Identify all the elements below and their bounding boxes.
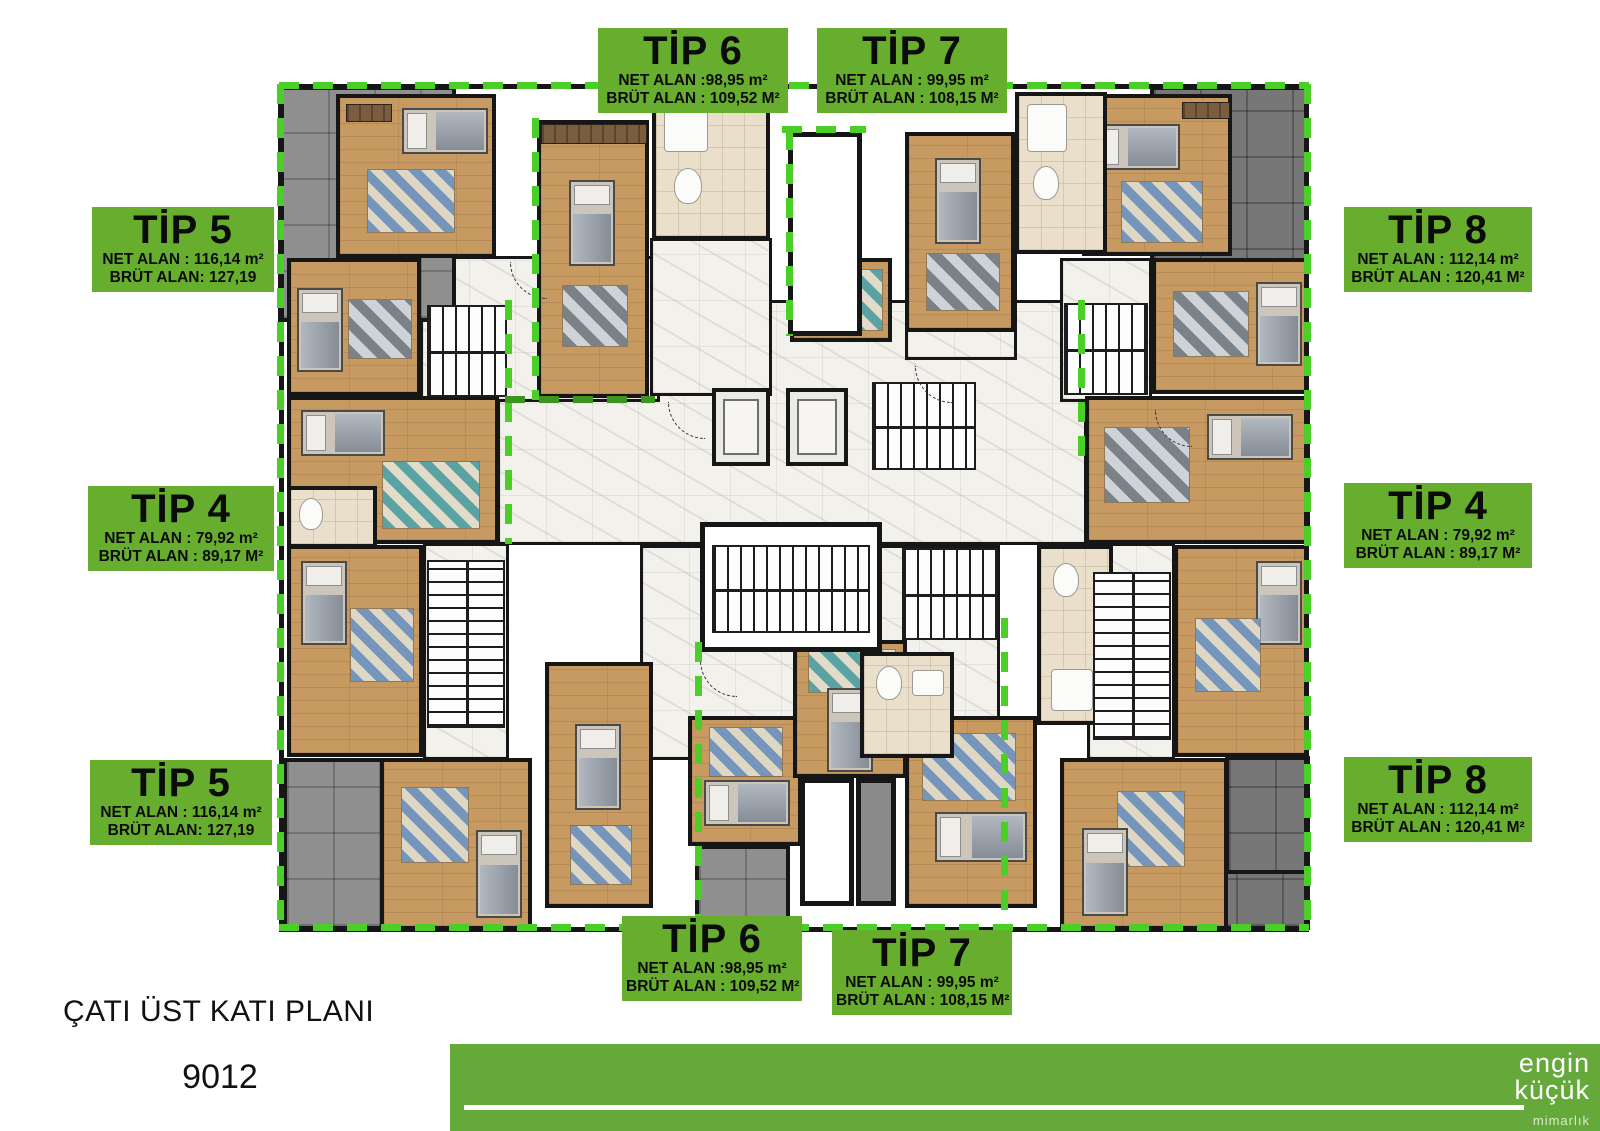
unit-label-net-area: NET ALAN : 116,14 m² — [94, 804, 268, 822]
building-outer-wall — [279, 84, 1309, 932]
unit-boundary-dash-tip7-bottom — [1001, 618, 1008, 928]
unit-label-title: TİP 5 — [96, 210, 270, 251]
unit-label-gross-area: BRÜT ALAN : 120,41 M² — [1348, 269, 1528, 287]
unit-label-gross-area: BRÜT ALAN: 127,19 — [94, 822, 268, 840]
unit-label-gross-area: BRÜT ALAN : 89,17 M² — [92, 548, 270, 566]
unit-boundary-dash-shaft-cap — [782, 126, 866, 133]
unit-boundary-dash-shaft-top — [786, 130, 793, 336]
logo-line-1: engin — [1514, 1050, 1590, 1077]
unit-label-gross-area: BRÜT ALAN : 108,15 M² — [836, 992, 1008, 1010]
unit-label-title: TİP 4 — [1348, 486, 1528, 527]
unit-label-net-area: NET ALAN : 99,95 m² — [821, 72, 1003, 90]
plan-number: 9012 — [140, 1058, 300, 1097]
unit-label-net-area: NET ALAN : 112,14 m² — [1348, 251, 1528, 269]
unit-boundary-dash-right — [1304, 84, 1311, 930]
architect-logo: engin küçük — [1514, 1050, 1590, 1104]
architect-logo-sub: mimarlık — [1533, 1114, 1590, 1127]
unit-label-tip5-left-bottom: TİP 5 NET ALAN : 116,14 m² BRÜT ALAN: 12… — [90, 760, 272, 845]
unit-label-tip7-top: TİP 7 NET ALAN : 99,95 m² BRÜT ALAN : 10… — [817, 28, 1007, 113]
unit-label-net-area: NET ALAN : 116,14 m² — [96, 251, 270, 269]
unit-label-net-area: NET ALAN :98,95 m² — [602, 72, 784, 90]
unit-label-gross-area: BRÜT ALAN : 109,52 M² — [602, 90, 784, 108]
unit-label-title: TİP 7 — [836, 933, 1008, 974]
unit-label-tip4-right: TİP 4 NET ALAN : 79,92 m² BRÜT ALAN : 89… — [1344, 483, 1532, 568]
unit-label-net-area: NET ALAN :98,95 m² — [626, 960, 798, 978]
unit-label-title: TİP 8 — [1348, 760, 1528, 801]
footer-divider-line — [464, 1105, 1524, 1110]
unit-label-tip7-bottom: TİP 7 NET ALAN : 99,95 m² BRÜT ALAN : 10… — [832, 930, 1012, 1015]
unit-boundary-dash-left — [277, 84, 284, 930]
unit-boundary-dash-tip8-mid — [1078, 300, 1085, 470]
unit-boundary-dash-tip6-bottom — [695, 642, 702, 928]
unit-label-title: TİP 5 — [94, 763, 268, 804]
unit-label-net-area: NET ALAN : 79,92 m² — [1348, 527, 1528, 545]
unit-label-title: TİP 6 — [602, 31, 784, 72]
unit-boundary-dash-tip6 — [532, 118, 539, 400]
unit-label-title: TİP 4 — [92, 489, 270, 530]
unit-label-tip5-left-top: TİP 5 NET ALAN : 116,14 m² BRÜT ALAN: 12… — [92, 207, 274, 292]
unit-label-gross-area: BRÜT ALAN : 120,41 M² — [1348, 819, 1528, 837]
unit-label-net-area: NET ALAN : 79,92 m² — [92, 530, 270, 548]
unit-label-tip4-left: TİP 4 NET ALAN : 79,92 m² BRÜT ALAN : 89… — [88, 486, 274, 571]
unit-label-gross-area: BRÜT ALAN : 89,17 M² — [1348, 545, 1528, 563]
logo-line-2: küçük — [1514, 1077, 1590, 1104]
unit-label-tip8-right-top: TİP 8 NET ALAN : 112,14 m² BRÜT ALAN : 1… — [1344, 207, 1532, 292]
unit-label-net-area: NET ALAN : 112,14 m² — [1348, 801, 1528, 819]
floor-plan-page: TİP 6 NET ALAN :98,95 m² BRÜT ALAN : 109… — [0, 0, 1600, 1131]
unit-boundary-dash-left-dark — [505, 396, 655, 403]
unit-label-gross-area: BRÜT ALAN : 109,52 M² — [626, 978, 798, 996]
unit-label-tip6-bottom: TİP 6 NET ALAN :98,95 m² BRÜT ALAN : 109… — [622, 916, 802, 1001]
footer-brand-bar: engin küçük mimarlık — [450, 1044, 1600, 1131]
unit-label-gross-area: BRÜT ALAN : 108,15 M² — [821, 90, 1003, 108]
unit-label-title: TİP 8 — [1348, 210, 1528, 251]
unit-boundary-dash-top — [279, 82, 1309, 89]
unit-label-net-area: NET ALAN : 99,95 m² — [836, 974, 1008, 992]
unit-boundary-dash-left-mid — [505, 300, 512, 544]
unit-label-tip6-top: TİP 6 NET ALAN :98,95 m² BRÜT ALAN : 109… — [598, 28, 788, 113]
plan-title: ÇATI ÜST KATI PLANI — [63, 995, 374, 1029]
unit-label-title: TİP 6 — [626, 919, 798, 960]
unit-label-gross-area: BRÜT ALAN: 127,19 — [96, 269, 270, 287]
logo-line-3: mimarlık — [1533, 1114, 1590, 1127]
unit-label-tip8-right-bottom: TİP 8 NET ALAN : 112,14 m² BRÜT ALAN : 1… — [1344, 757, 1532, 842]
unit-label-title: TİP 7 — [821, 31, 1003, 72]
